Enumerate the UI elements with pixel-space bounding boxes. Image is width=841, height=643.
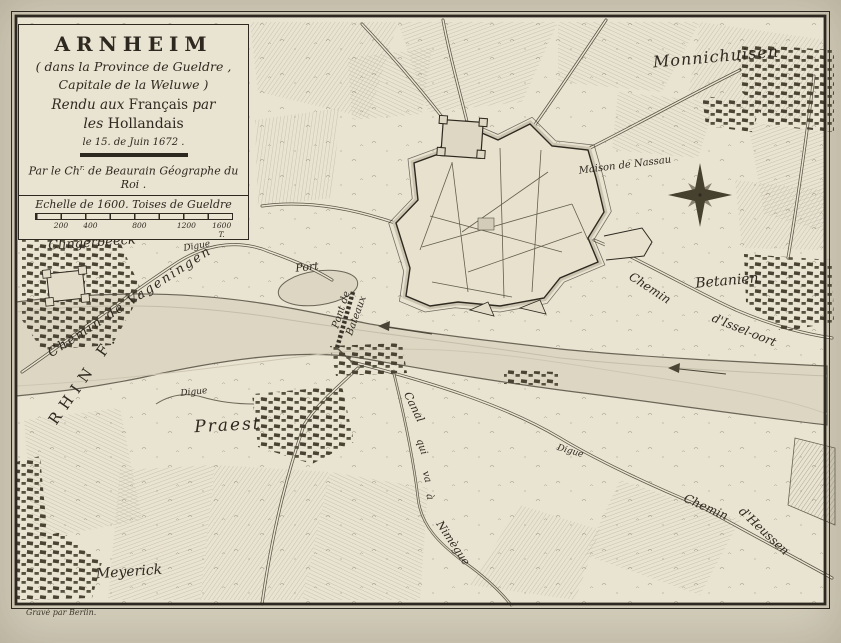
scale-tick-1600: 1600 T. [212, 221, 231, 239]
scale-tick-400: 400 [83, 221, 97, 230]
title-line-4: Rendu aux Français par [51, 97, 215, 113]
title-date: le 15. de Juin 1672 . [83, 137, 185, 148]
scale-bar [35, 213, 233, 220]
cartouche-rule [80, 153, 188, 157]
title-line-3: Capitale de la Weluwe ) [59, 77, 209, 92]
author-line: Par le Chr. de Beaurain Géographe du Roi… [19, 164, 248, 191]
bridgehead-hamlet [330, 343, 407, 376]
scale-tick-800: 800 [132, 221, 146, 230]
map-sheet: Monnichuisen Clingerbeeck Chemin de Vage… [0, 0, 841, 643]
market-square [478, 218, 494, 230]
title-cartouche: ARNHEIM ( dans la Province de Gueldre , … [18, 24, 249, 198]
scale-tick-1200: 1200 [177, 221, 196, 230]
scale-label: Echelle de 1600. Toises de Gueldre [19, 198, 248, 211]
engraver-credit: Gravé par Berlin. [26, 608, 96, 617]
sconce-fort [42, 266, 90, 306]
scale-ticks: 200 400 800 1200 1600 T. [36, 220, 232, 230]
riverside-buildings [504, 370, 558, 386]
scale-box: Echelle de 1600. Toises de Gueldre 200 4… [18, 195, 249, 240]
title-line-5: les Hollandais [83, 116, 183, 132]
scale-tick-200: 200 [54, 221, 68, 230]
map-title: ARNHEIM [54, 32, 212, 56]
title-line-2: ( dans la Province de Gueldre , [36, 59, 232, 74]
citadel-redoubt [437, 115, 488, 158]
